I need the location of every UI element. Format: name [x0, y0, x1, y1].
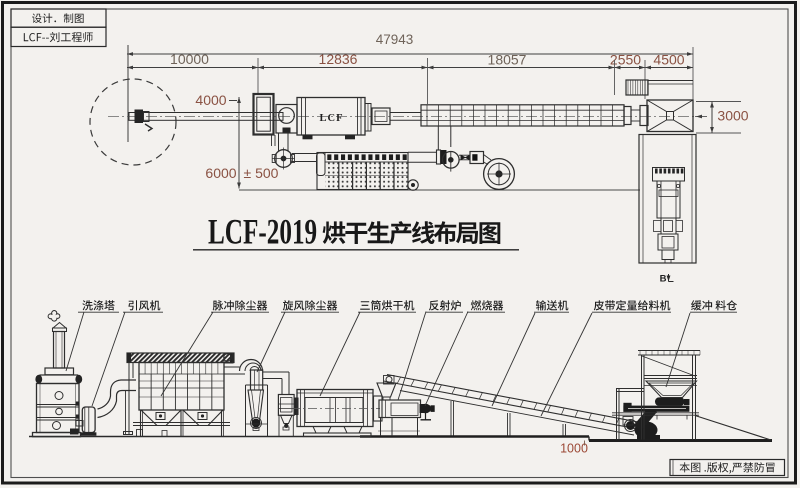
- svg-text:10000: 10000: [170, 51, 209, 67]
- svg-text:18057: 18057: [488, 52, 527, 68]
- svg-text:47943: 47943: [376, 32, 414, 47]
- svg-text:12836: 12836: [319, 51, 358, 67]
- svg-text:3000: 3000: [717, 108, 748, 124]
- svg-text:6000: 6000: [205, 165, 236, 181]
- svg-text:LCF: LCF: [320, 113, 344, 124]
- svg-text:B: B: [660, 274, 667, 285]
- svg-text:± 500: ± 500: [244, 165, 279, 181]
- svg-text:4000: 4000: [195, 92, 226, 108]
- svg-text:1000: 1000: [560, 442, 588, 456]
- svg-text:LCF-2019: LCF-2019: [208, 211, 317, 252]
- svg-text:4500: 4500: [653, 52, 684, 68]
